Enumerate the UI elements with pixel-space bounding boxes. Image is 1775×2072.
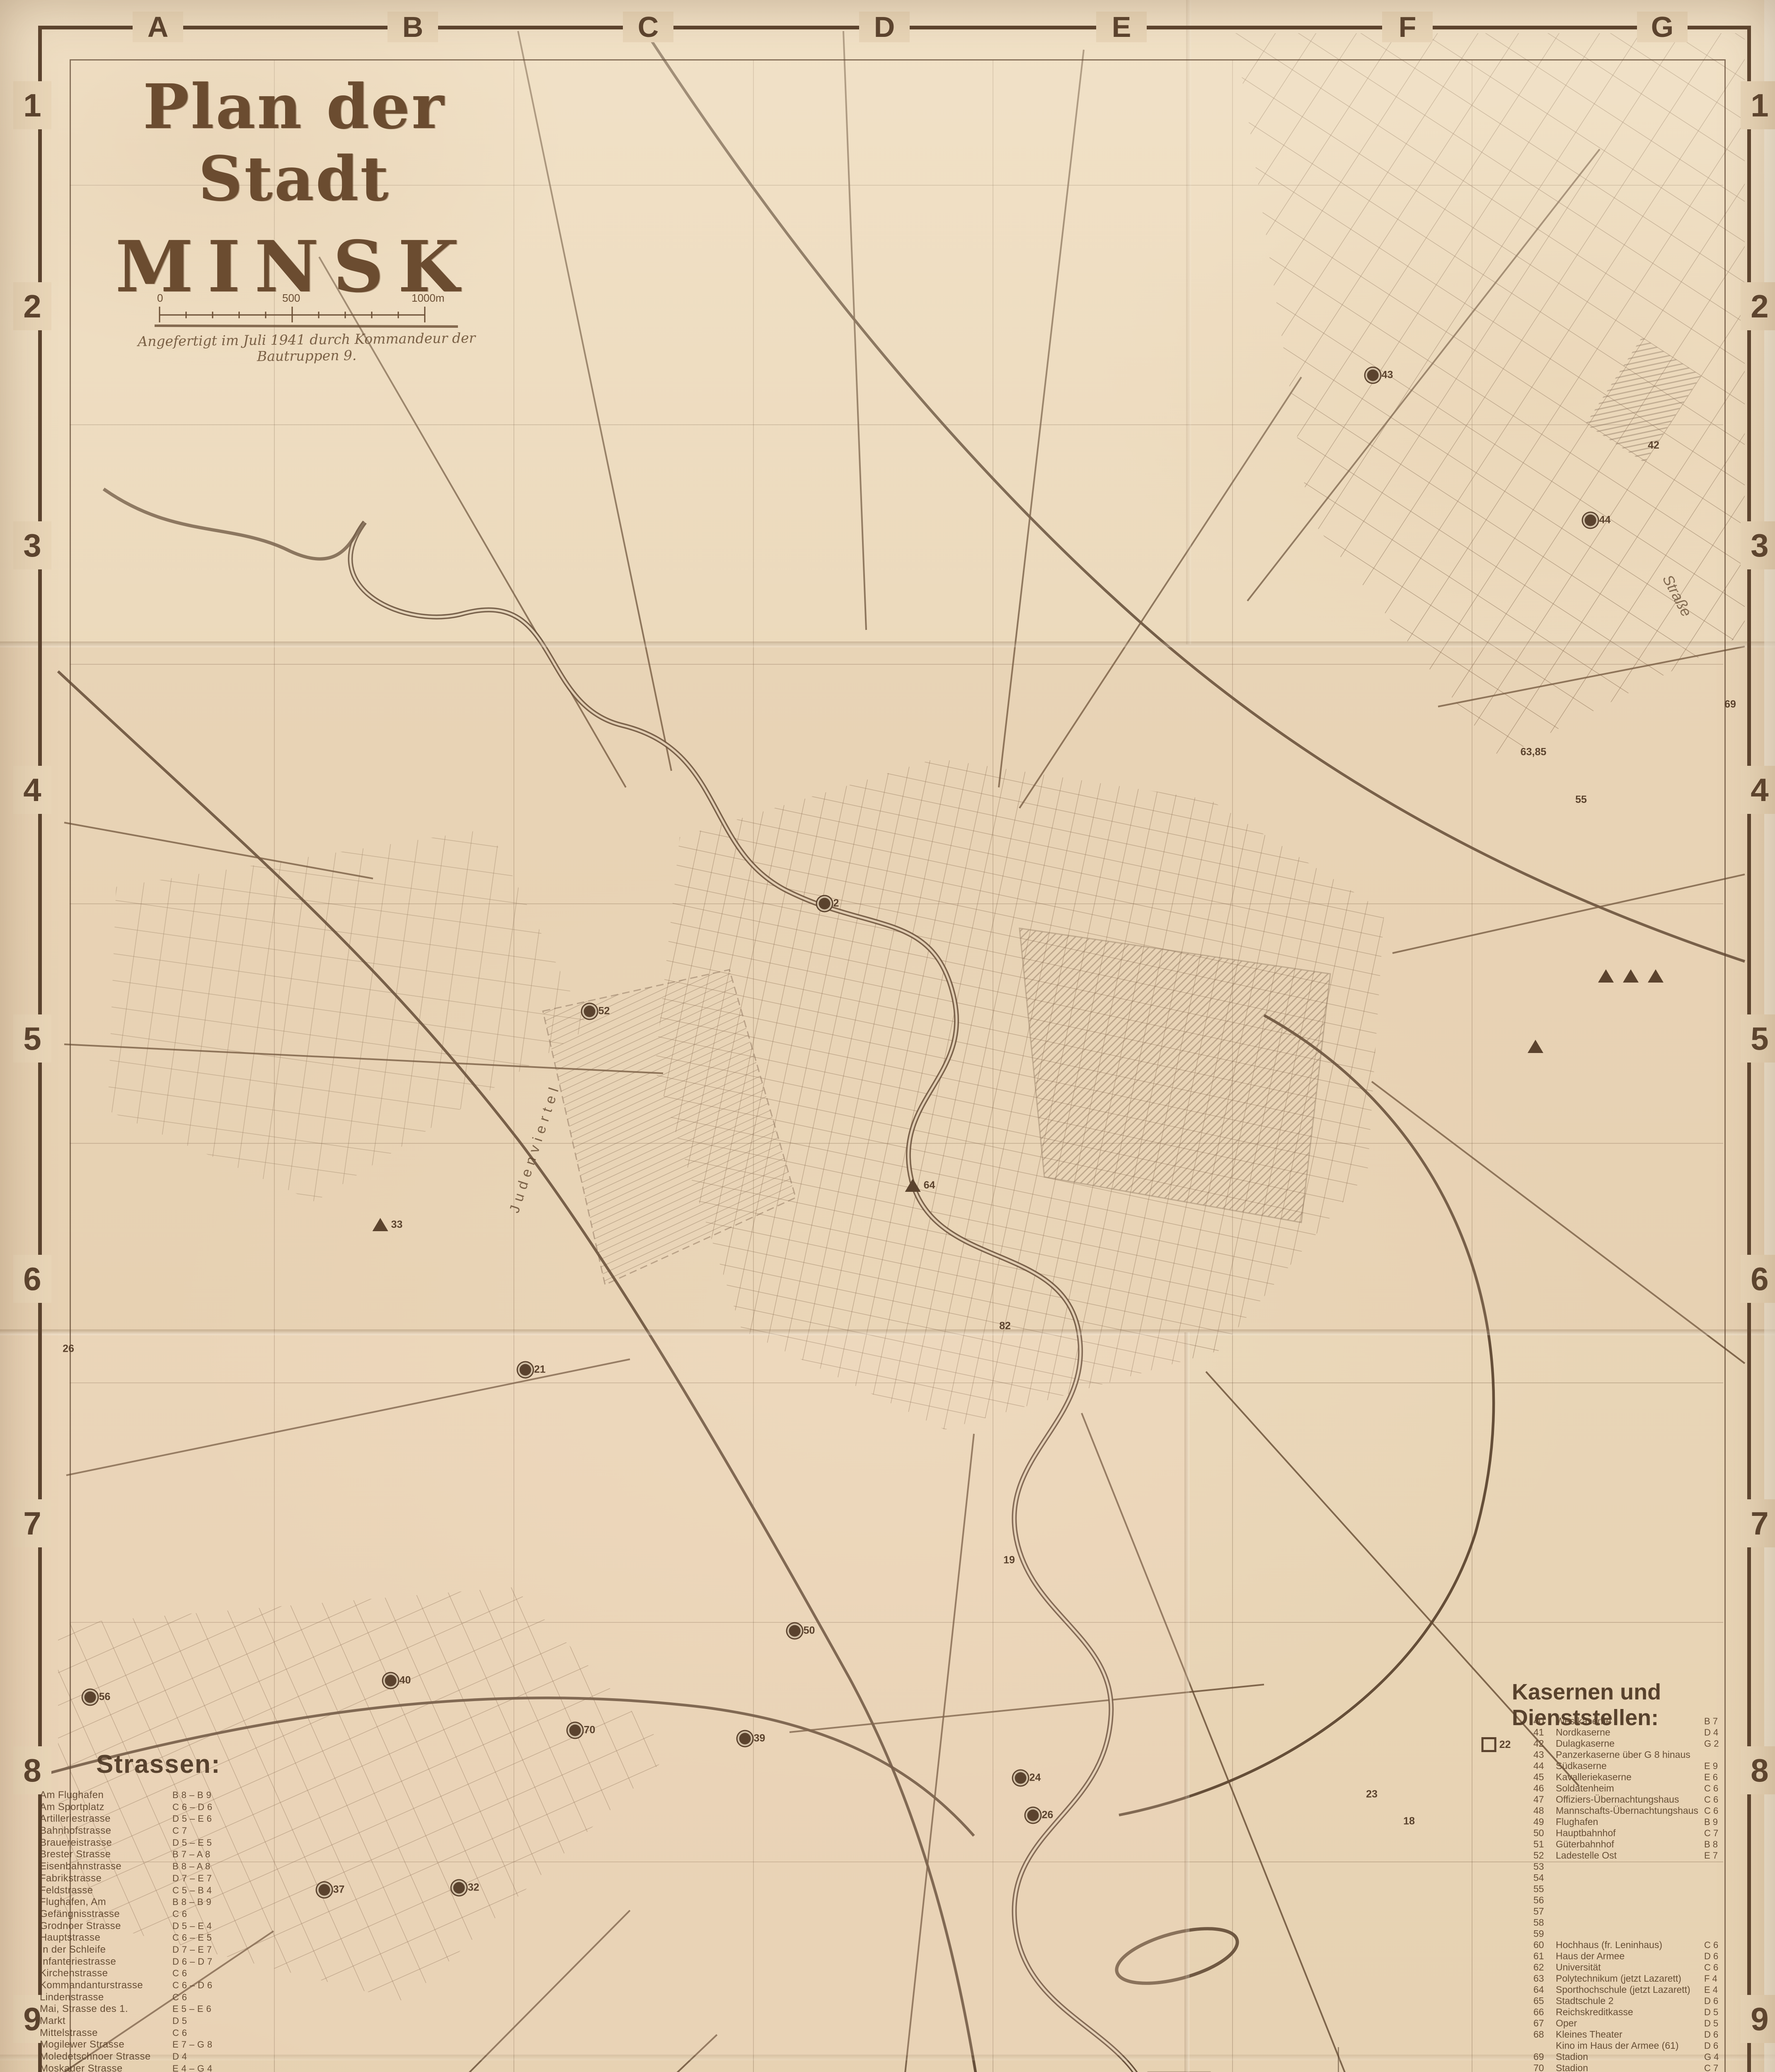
barracks-row: 41NordkaserneD 4 [1533,1727,1731,1738]
street-grid-ref: D 6 – D 7 [172,1956,227,1967]
street-row: InfanteriestrasseD 6 – D 7 [40,1956,227,1968]
street-name: Am Sportplatz [40,1801,172,1813]
street-name: In der Schleife [40,1944,172,1956]
barracks-row: 47Offiziers-ÜbernachtungshausC 6 [1533,1794,1731,1805]
barracks-row: 66ReichskreditkasseD 5 [1533,2007,1731,2018]
street-grid-ref: B 7 – A 8 [172,1849,227,1860]
street-name: Markt [40,2015,172,2027]
barracks-name: Kavalleriekaserne [1556,1772,1704,1783]
street-name: Kirchenstrasse [40,1968,172,1979]
street-name: Flughafen, Am [40,1896,172,1908]
barracks-row: 56 [1533,1895,1731,1906]
barracks-number: 41 [1533,1727,1556,1738]
barracks-grid-ref: C 6 [1704,1940,1731,1951]
map-marker-64: 64 [905,1179,935,1192]
map-marker-2: 2 [819,898,839,910]
circle-marker-icon [85,1691,96,1703]
marker-number: 21 [534,1364,546,1376]
street-row: BrauereistrasseD 5 – E 5 [40,1837,227,1849]
barracks-number: 47 [1533,1794,1556,1805]
map-marker-triangle [1623,969,1639,983]
barracks-number: 45 [1533,1772,1556,1783]
street-grid-ref: C 7 [172,1825,227,1836]
grid-row-label-8: 8 [13,1746,51,1794]
circle-marker-icon [789,1625,801,1636]
marker-number: 55 [1575,794,1587,806]
street-grid-ref: D 4 [172,2051,227,2062]
barracks-name: Kleines Theater [1556,2029,1704,2040]
street-row: LindenstrasseC 6 [40,1992,227,2004]
street-name: Fabrikstrasse [40,1873,172,1884]
barracks-row: 40WestkaserneB 7 [1533,1716,1731,1727]
barracks-row: 50HauptbahnhofC 7 [1533,1828,1731,1839]
barracks-grid-ref: D 6 [1704,2041,1731,2051]
barracks-number: 68 [1533,2029,1556,2040]
barracks-row: 68Kleines TheaterD 6 [1533,2029,1731,2040]
street-grid-ref: C 6 [172,1909,227,1920]
barracks-name: Panzerkaserne über G 8 hinaus [1556,1749,1704,1760]
marker-number: 33 [391,1219,403,1231]
street-name: Bahnhofstrasse [40,1825,172,1837]
marker-number: 26 [63,1343,74,1355]
barracks-row: 55 [1533,1883,1731,1895]
map-marker-43: 43 [1367,369,1393,381]
map-marker-triangle [1648,969,1664,983]
barracks-name: Universität [1556,1962,1704,1973]
street-row: Brester StrasseB 7 – A 8 [40,1849,227,1861]
circle-marker-icon [739,1733,751,1744]
map-marker-70: 70 [569,1724,596,1736]
street-grid-ref: D 5 – E 6 [172,1813,227,1824]
grid-row-label-5: 5 [1741,1014,1775,1063]
street-row: EisenbahnstrasseB 8 – A 8 [40,1861,227,1873]
barracks-list: 40WestkaserneB 741NordkaserneD 442Dulagk… [1533,1716,1731,2072]
street-grid-ref: C 6 [172,1968,227,1979]
circle-marker-icon [385,1675,397,1686]
marker-number: 82 [999,1320,1011,1332]
barracks-grid-ref: F 4 [1704,1973,1731,1984]
triangle-marker-icon [1648,969,1664,983]
barracks-name: Hochhaus (fr. Leninhaus) [1556,1939,1704,1951]
grid-row-label-7: 7 [1741,1499,1775,1547]
marker-number: 26 [1042,1809,1053,1821]
street-grid-ref: C 5 – B 4 [172,1885,227,1896]
map-marker-82: 82 [999,1320,1011,1332]
map-marker-37: 37 [319,1884,345,1896]
barracks-name: Dulagkaserne [1556,1738,1704,1749]
barracks-number: 57 [1533,1906,1556,1917]
barracks-row: 64Sporthochschule (jetzt Lazarett)E 4 [1533,1984,1731,1995]
grid-column-label-B: B [387,12,438,42]
street-grid-ref: D 5 – E 5 [172,1837,227,1848]
street-row: Moledetschnoer StrasseD 4 [40,2051,227,2063]
street-name: Lindenstrasse [40,1992,172,2003]
street-name: Artilleriestrasse [40,1813,172,1825]
barracks-name: Stadtschule 2 [1556,1995,1704,2007]
legend-divider [1338,2047,1339,2072]
barracks-name: Nordkaserne [1556,1727,1704,1738]
grid-row-label-1: 1 [13,81,51,129]
scale-tick-500: 500 [282,292,300,304]
marker-number: 56 [99,1691,111,1703]
barracks-grid-ref: B 7 [1704,1716,1731,1727]
grid-row-label-6: 6 [13,1255,51,1303]
street-name: Gefängnisstrasse [40,1908,172,1920]
barracks-grid-ref: D 6 [1704,1951,1731,1962]
marker-number: 69 [1724,699,1736,711]
barracks-name: Stadion [1556,2051,1704,2062]
barracks-grid-ref: B 8 [1704,1839,1731,1850]
barracks-row: 62UniversitätC 6 [1533,1962,1731,1973]
marker-number: 64 [924,1179,935,1191]
barracks-number: 43 [1533,1749,1556,1760]
barracks-row: 65Stadtschule 2D 6 [1533,1995,1731,2007]
barracks-number: 48 [1533,1805,1556,1816]
streets-list: Am FlughafenB 8 – B 9Am SportplatzC 6 – … [40,1789,227,2072]
barracks-row: 57 [1533,1906,1731,1917]
street-row: Grodnoer StrasseD 5 – E 4 [40,1920,227,1932]
street-row: Mai, Strasse des 1.E 5 – E 6 [40,2003,227,2015]
grid-column-label-G: G [1637,12,1688,42]
street-row: KirchenstrasseC 6 [40,1968,227,1980]
map-marker-26: 26 [63,1343,74,1355]
grid-row-label-2: 2 [1741,282,1775,330]
barracks-grid-ref: D 6 [1704,2029,1731,2040]
map-marker-55: 55 [1575,794,1587,806]
barracks-number: 60 [1533,1939,1556,1951]
barracks-row: 52Ladestelle OstE 7 [1533,1850,1731,1861]
map-marker-23: 23 [1366,1789,1378,1801]
grid-row-label-6: 6 [1741,1255,1775,1303]
map-subtitle: Angefertigt im Juli 1941 durch Kommandeu… [112,329,502,366]
scale-tick-0: 0 [157,292,163,304]
barracks-name: Mannschafts-Übernachtungshaus [1556,1805,1704,1816]
barracks-grid-ref: D 4 [1704,1727,1731,1738]
street-grid-ref: C 6 – D 6 [172,1802,227,1813]
street-row: BahnhofstrasseC 7 [40,1825,227,1837]
map-marker-33: 33 [373,1218,403,1231]
marker-number: 70 [584,1724,596,1736]
circle-marker-icon [520,1364,531,1375]
square-marker-icon [1482,1737,1497,1752]
barracks-row: 60Hochhaus (fr. Leninhaus)C 6 [1533,1939,1731,1951]
street-grid-ref: E 5 – E 6 [172,2004,227,2014]
grid-column-label-F: F [1382,12,1433,42]
street-row: Am SportplatzC 6 – D 6 [40,1801,227,1813]
street-grid-ref: C 6 [172,1992,227,2003]
barracks-grid-ref: C 6 [1704,1806,1731,1816]
title-line1: Plan der Stadt [95,70,493,215]
map-marker-39: 39 [739,1733,765,1745]
barracks-number: 69 [1533,2051,1556,2062]
barracks-row: 63Polytechnikum (jetzt Lazarett)F 4 [1533,1973,1731,1984]
street-row: In der SchleifeD 7 – E 7 [40,1944,227,1956]
marker-number: 19 [1003,1554,1015,1566]
barracks-number: 40 [1533,1716,1556,1727]
barracks-number: 65 [1533,1995,1556,2007]
map-marker-63,85: 63,85 [1521,746,1547,758]
barracks-grid-ref: D 5 [1704,2018,1731,2029]
grid-row-label-3: 3 [1741,521,1775,569]
barracks-row: Kino im Haus der Armee (61)D 6 [1533,2040,1731,2051]
barracks-row: 51GüterbahnhofB 8 [1533,1839,1731,1850]
map-marker-42: 42 [1648,440,1659,452]
barracks-row: 58 [1533,1917,1731,1928]
marker-number: 39 [754,1733,765,1745]
barracks-number: 59 [1533,1928,1556,1939]
triangle-marker-icon [1623,969,1639,983]
circle-marker-icon [584,1005,596,1017]
barracks-number: 51 [1533,1839,1556,1850]
grid-row-label-3: 3 [13,521,51,569]
barracks-grid-ref: C 6 [1704,1783,1731,1794]
map-marker-52: 52 [584,1005,610,1017]
street-grid-ref: E 7 – G 8 [172,2039,227,2050]
barracks-number: 49 [1533,1816,1556,1828]
grid-column-label-A: A [133,12,183,42]
grid-row-label-8: 8 [1741,1746,1775,1794]
grid-row-label-1: 1 [1741,81,1775,129]
barracks-row: 44SüdkaserneE 9 [1533,1760,1731,1772]
barracks-row: 67OperD 5 [1533,2018,1731,2029]
map-marker-19: 19 [1003,1554,1015,1566]
map-marker-22: 22 [1482,1737,1511,1752]
street-grid-ref: D 7 – E 7 [172,1873,227,1884]
circle-marker-icon [1367,369,1379,381]
scale-bar: 0 500 1000m [151,290,466,336]
grid-column-label-C: C [623,12,673,42]
grid-row-label-2: 2 [13,282,51,330]
street-name: Hauptstrasse [40,1932,172,1944]
map-marker-44: 44 [1585,514,1611,526]
barracks-grid-ref: C 7 [1704,1828,1731,1839]
grid-row-label-4: 4 [13,766,51,814]
barracks-grid-ref: D 6 [1704,1996,1731,2007]
grid-row-label-4: 4 [1741,766,1775,814]
map-marker-50: 50 [789,1625,815,1637]
barracks-row: 48Mannschafts-ÜbernachtungshausC 6 [1533,1805,1731,1816]
street-row: Moskauer StrasseE 4 – G 4 [40,2063,227,2072]
barracks-name: Kino im Haus der Armee (61) [1556,2040,1704,2051]
barracks-grid-ref: E 9 [1704,1761,1731,1772]
street-grid-ref: B 8 – A 8 [172,1861,227,1872]
triangle-marker-icon [373,1218,388,1231]
street-name: Brester Strasse [40,1849,172,1860]
barracks-number: 55 [1533,1883,1556,1895]
barracks-row: 49FlughafenB 9 [1533,1816,1731,1828]
marker-number: 52 [598,1005,610,1017]
barracks-grid-ref: D 5 [1704,2007,1731,2018]
barracks-name: Oper [1556,2018,1704,2029]
grid-row-label-9: 9 [1741,1995,1775,2043]
barracks-number: 46 [1533,1783,1556,1794]
barracks-row: 70StadionC 7 [1533,2062,1731,2072]
street-row: MittelstrasseC 6 [40,2027,227,2039]
street-row: HauptstrasseC 6 – E 5 [40,1932,227,1944]
barracks-number: 42 [1533,1738,1556,1749]
street-row: ArtilleriestrasseD 5 – E 6 [40,1813,227,1825]
marker-number: 44 [1599,514,1611,526]
map-marker-18: 18 [1403,1815,1415,1828]
marker-number: 2 [833,898,839,910]
street-grid-ref: E 4 – G 4 [172,2063,227,2072]
grid-row-label-7: 7 [13,1499,51,1547]
barracks-row: 54 [1533,1872,1731,1883]
map-title: Plan der Stadt MINSK [95,70,493,308]
street-name: Kommandanturstrasse [40,1980,172,1991]
triangle-marker-icon [1528,1040,1543,1053]
barracks-row: 46SoldatenheimC 6 [1533,1783,1731,1794]
street-name: Moledetschnoer Strasse [40,2051,172,2062]
barracks-number: 63 [1533,1973,1556,1984]
street-name: Eisenbahnstrasse [40,1861,172,1872]
barracks-row: 53 [1533,1861,1731,1872]
barracks-name: Südkaserne [1556,1760,1704,1772]
barracks-number: 70 [1533,2062,1556,2072]
circle-marker-icon [819,898,831,909]
street-grid-ref: C 6 – D 6 [172,1980,227,1991]
barracks-name: Offiziers-Übernachtungshaus [1556,1794,1704,1805]
barracks-number: 53 [1533,1861,1556,1872]
barracks-grid-ref: C 6 [1704,1962,1731,1973]
circle-marker-icon [1027,1809,1039,1821]
barracks-name: Polytechnikum (jetzt Lazarett) [1556,1973,1704,1984]
circle-marker-icon [319,1884,330,1895]
marker-number: 18 [1403,1815,1415,1828]
street-row: Mogilewer StrasseE 7 – G 8 [40,2039,227,2051]
street-row: KommandanturstrasseC 6 – D 6 [40,1980,227,1992]
circle-marker-icon [453,1882,465,1893]
street-grid-ref: B 8 – B 9 [172,1790,227,1801]
map-marker-32: 32 [453,1882,479,1894]
street-name: Am Flughafen [40,1789,172,1801]
street-row: FabrikstrasseD 7 – E 7 [40,1873,227,1885]
street-name: Mogilewer Strasse [40,2039,172,2050]
barracks-number: 50 [1533,1828,1556,1839]
map-marker-56: 56 [85,1691,111,1703]
marker-number: 50 [804,1625,815,1637]
barracks-number: 66 [1533,2007,1556,2018]
triangle-marker-icon [905,1179,921,1192]
circle-marker-icon [1015,1772,1027,1784]
marker-number: 42 [1648,440,1659,452]
street-grid-ref: B 8 – B 9 [172,1897,227,1907]
barracks-number: 44 [1533,1760,1556,1772]
barracks-number: 64 [1533,1984,1556,1995]
triangle-marker-icon [1598,969,1614,983]
barracks-number: 52 [1533,1850,1556,1861]
barracks-grid-ref: E 4 [1704,1985,1731,1995]
scale-tick-1000: 1000m [412,292,445,304]
barracks-row: 69StadionG 4 [1533,2051,1731,2062]
grid-row-label-5: 5 [13,1014,51,1063]
circle-marker-icon [1585,514,1596,526]
map-sheet: AABBCCDDEEFFGG1122334455667788991010 Pla… [0,0,1775,2072]
map-marker-26: 26 [1027,1809,1053,1821]
barracks-number: 56 [1533,1895,1556,1906]
street-name: Brauereistrasse [40,1837,172,1849]
barracks-row: 43Panzerkaserne über G 8 hinaus [1533,1749,1731,1760]
barracks-name: Haus der Armee [1556,1951,1704,1962]
grid-column-label-E: E [1096,12,1147,42]
barracks-grid-ref: C 6 [1704,1794,1731,1805]
barracks-row: 61Haus der ArmeeD 6 [1533,1951,1731,1962]
barracks-grid-ref: G 2 [1704,1738,1731,1749]
street-grid-ref: D 5 [172,2016,227,2026]
barracks-name: Flughafen [1556,1816,1704,1828]
map-marker-21: 21 [520,1364,546,1376]
barracks-grid-ref: G 4 [1704,2052,1731,2062]
map-marker-triangle [1528,1040,1543,1053]
street-name: Grodnoer Strasse [40,1920,172,1932]
barracks-number: 61 [1533,1951,1556,1962]
barracks-name: Sporthochschule (jetzt Lazarett) [1556,1984,1704,1995]
barracks-row: 59 [1533,1928,1731,1939]
street-name: Moskauer Strasse [40,2063,172,2072]
barracks-row: 42DulagkaserneG 2 [1533,1738,1731,1749]
map-marker-40: 40 [385,1675,411,1687]
marker-number: 24 [1029,1772,1041,1784]
barracks-grid-ref: E 7 [1704,1850,1731,1861]
street-name: Mittelstrasse [40,2027,172,2039]
marker-number: 22 [1499,1739,1511,1751]
barracks-grid-ref: B 9 [1704,1817,1731,1828]
streets-heading: Strassen: [96,1750,221,1779]
barracks-name: Ladestelle Ost [1556,1850,1704,1861]
grid-column-label-D: D [859,12,910,42]
street-row: Flughafen, AmB 8 – B 9 [40,1896,227,1908]
street-row: FeldstrasseC 5 – B 4 [40,1885,227,1897]
street-row: GefängnisstrasseC 6 [40,1908,227,1920]
street-grid-ref: C 6 [172,2028,227,2038]
barracks-name: Güterbahnhof [1556,1839,1704,1850]
barracks-name: Stadion [1556,2062,1704,2072]
barracks-number: 62 [1533,1962,1556,1973]
barracks-name: Soldatenheim [1556,1783,1704,1794]
marker-number: 32 [468,1882,479,1894]
street-name: Infanteriestrasse [40,1956,172,1968]
barracks-number: 54 [1533,1872,1556,1883]
barracks-number: 67 [1533,2018,1556,2029]
barracks-row: 45KavalleriekaserneE 6 [1533,1772,1731,1783]
barracks-name: Reichskreditkasse [1556,2007,1704,2018]
street-name: Mai, Strasse des 1. [40,2003,172,2015]
barracks-name: Westkaserne [1556,1716,1704,1727]
map-marker-69: 69 [1724,699,1736,711]
street-grid-ref: C 6 – E 5 [172,1932,227,1943]
marker-number: 37 [333,1884,345,1896]
street-grid-ref: D 7 – E 7 [172,1944,227,1955]
street-row: Am FlughafenB 8 – B 9 [40,1789,227,1801]
marker-number: 40 [400,1675,411,1687]
map-marker-24: 24 [1015,1772,1041,1784]
marker-number: 23 [1366,1789,1378,1801]
marker-number: 43 [1382,369,1393,381]
barracks-name: Hauptbahnhof [1556,1828,1704,1839]
street-name: Feldstrasse [40,1885,172,1896]
street-row: MarktD 5 [40,2015,227,2027]
street-grid-ref: D 5 – E 4 [172,1921,227,1932]
barracks-grid-ref: C 7 [1704,2063,1731,2072]
circle-marker-icon [569,1724,581,1736]
barracks-number: 58 [1533,1917,1556,1928]
marker-number: 63,85 [1521,746,1547,758]
map-marker-triangle [1598,969,1614,983]
barracks-grid-ref: E 6 [1704,1772,1731,1783]
